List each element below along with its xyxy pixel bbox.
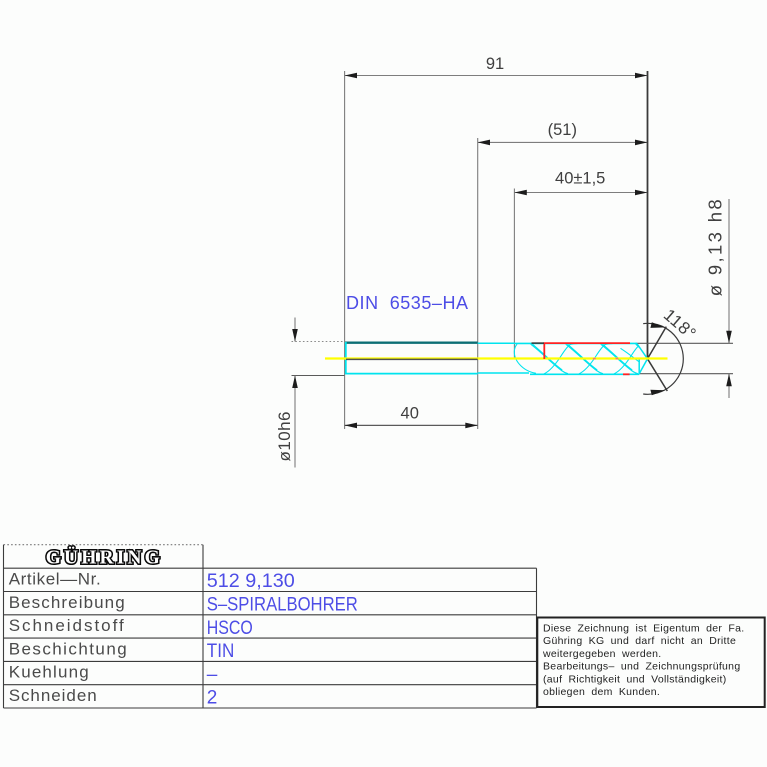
svg-text:weitergegeben werden.: weitergegeben werden.	[542, 648, 661, 660]
svg-text:HSCO: HSCO	[207, 618, 253, 639]
svg-text:TIN: TIN	[207, 641, 235, 662]
svg-text:Artikel—Nr.: Artikel—Nr.	[9, 570, 101, 589]
svg-text:512 9,130: 512 9,130	[207, 571, 295, 592]
svg-text:91: 91	[486, 55, 504, 73]
svg-text:Beschreibung: Beschreibung	[9, 593, 125, 612]
svg-text:Diese Zeichnung ist Eigentum d: Diese Zeichnung ist Eigentum der Fa.	[543, 623, 744, 635]
svg-text:ø 9,13 h8: ø 9,13 h8	[705, 199, 726, 296]
svg-text:(51): (51)	[548, 121, 577, 139]
svg-text:Gühring KG und darf nicht an D: Gühring KG und darf nicht an Dritte	[543, 635, 736, 647]
svg-text:40: 40	[401, 405, 419, 423]
svg-text:ø10h6: ø10h6	[275, 412, 294, 462]
svg-text:S–SPIRALBOHRER: S–SPIRALBOHRER	[207, 595, 358, 616]
svg-text:obliegen dem Kunden.: obliegen dem Kunden.	[543, 686, 660, 698]
svg-text:–: –	[207, 664, 218, 685]
svg-text:Schneidstoff: Schneidstoff	[9, 616, 124, 635]
svg-text:Bearbeitungs– und Zeichnungspr: Bearbeitungs– und Zeichnungsprüfung	[543, 661, 740, 673]
svg-text:Kuehlung: Kuehlung	[9, 663, 89, 682]
svg-text:Beschichtung: Beschichtung	[9, 639, 127, 658]
svg-text:(auf Richtigkeit und Vollständ: (auf Richtigkeit und Vollständigkeit)	[543, 673, 727, 685]
svg-text:Schneiden: Schneiden	[9, 686, 97, 705]
svg-text:40±1,5: 40±1,5	[555, 170, 605, 188]
svg-text:DIN 6535–HA: DIN 6535–HA	[346, 293, 468, 313]
svg-text:2: 2	[207, 688, 218, 709]
